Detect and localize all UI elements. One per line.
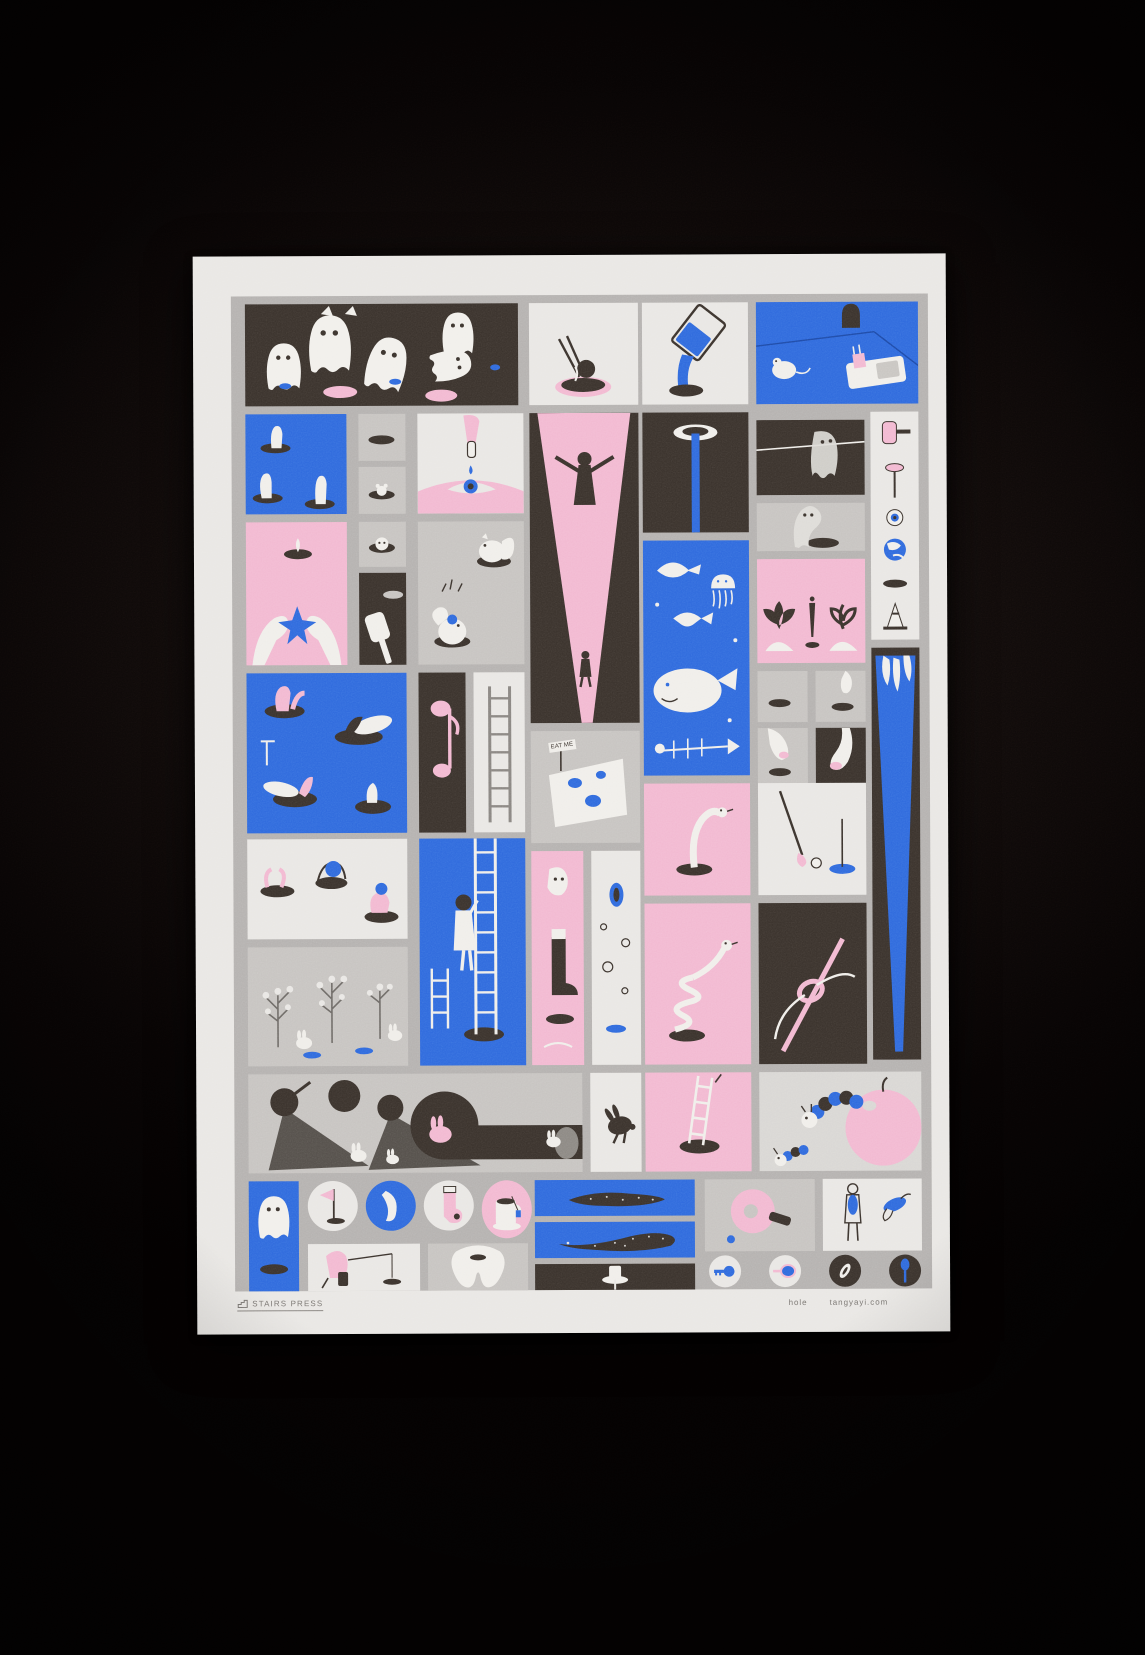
panel-finger-holes [245, 414, 346, 514]
ladder-climber-illustration [419, 838, 526, 1065]
panel-light-beam [529, 413, 639, 723]
panel-circle-blue-crescent [366, 1181, 416, 1231]
hole-hugger-illustration [823, 1178, 922, 1250]
whale [653, 668, 737, 712]
ghost-column-illustration [249, 1181, 299, 1291]
boot-step-illustration [531, 851, 584, 1065]
photo-of-poster: EAT ME [0, 0, 1145, 1655]
poster-grid: EAT ME [231, 293, 932, 1291]
panel-pouring-glass [642, 302, 748, 404]
mole-mallet-illustration [359, 573, 406, 665]
publisher-mark: STAIRS PRESS [237, 1299, 323, 1311]
needle-thread-illustration [758, 903, 867, 1064]
panel-eye-dropper [417, 413, 523, 513]
twig-garden-illustration [248, 947, 409, 1067]
panel-undersea [643, 540, 750, 775]
hole-players-illustration [247, 839, 407, 940]
star-pickup-illustration [246, 522, 348, 665]
panel-ghost-column [249, 1181, 299, 1291]
stairs-press-logo-icon [237, 1299, 248, 1308]
poster-credits: hole tangyayi.com [789, 1298, 889, 1307]
ladder-out-illustration [645, 1072, 751, 1171]
panel-tooth-cavity [428, 1243, 528, 1290]
tooth-illustration [428, 1243, 528, 1290]
panel-circle-golf-flag [308, 1181, 358, 1231]
pouring-glass-illustration [642, 302, 748, 404]
panel-star-pickup [246, 522, 348, 665]
undersea-illustration [643, 540, 750, 775]
finger-holes-illustration [245, 414, 346, 514]
spring-coil-illustration [644, 903, 751, 1064]
panel-ladder-up [473, 672, 525, 832]
ghost-slump-illustration [757, 503, 865, 551]
panel-rabbit-silhouette [590, 1073, 641, 1172]
snake-out-illustration [644, 783, 750, 895]
globe-icon [884, 539, 906, 561]
panel-small-hole [358, 414, 405, 461]
panel-ghost-clothesline [756, 420, 864, 495]
panel-paddle-hole [705, 1179, 815, 1251]
panel-bubble-holes [591, 851, 641, 1065]
panel-fisher [308, 1244, 420, 1291]
mousetrap-illustration [756, 301, 918, 404]
ladder-illustration [473, 672, 525, 832]
poster-footer: STAIRS PRESS hole tangyayi.com [197, 1296, 950, 1313]
ghost-party-illustration [245, 303, 518, 406]
panel-garden [757, 559, 865, 663]
hugging-figure [845, 1184, 861, 1241]
panel-golf-putt [758, 783, 866, 895]
shadow-rabbits-illustration [248, 1073, 582, 1173]
hand-through-hole [881, 1194, 911, 1221]
panel-circle-mug [482, 1180, 532, 1238]
panel-finger-dark [816, 728, 866, 785]
object-strip-illustration [870, 411, 919, 639]
panel-hole-players [247, 839, 407, 940]
poster-title: hole [789, 1298, 808, 1307]
noodle-hole-illustration [529, 303, 638, 405]
panel-eat-me-cheese: EAT ME [531, 731, 640, 843]
panel-noodle-hole [529, 303, 638, 405]
pink-note-illustration [418, 672, 466, 832]
panel-mole-mallet [359, 573, 406, 665]
panel-sink-drain [642, 412, 749, 532]
fish-bones [655, 738, 740, 758]
eye-dropper-illustration [417, 413, 523, 513]
sink-drain-illustration [642, 412, 749, 532]
traffic-cone-icon [883, 604, 907, 630]
panel-circle-sock [424, 1180, 474, 1230]
panel-sprinkler [535, 1263, 695, 1290]
panel-eel-swim-2 [535, 1221, 695, 1258]
panel-small-hole-mouse [359, 467, 406, 514]
panel-object-strip [870, 411, 919, 639]
panel-ghost-slump [757, 503, 865, 551]
panel-pink-note [418, 672, 466, 832]
panel-circle-pan [769, 1255, 801, 1287]
poster-paper: EAT ME [193, 253, 951, 1334]
panel-fingertip-hole [758, 728, 808, 785]
garden-illustration [757, 559, 865, 663]
panel-spring-coil [644, 903, 751, 1064]
paddle-illustration [705, 1179, 815, 1251]
fisher-illustration [308, 1244, 420, 1291]
cheese-illustration [531, 731, 640, 843]
squirrel-burrows-illustration [418, 521, 525, 664]
caterpillar-apple-illustration [759, 1071, 921, 1171]
panel-squirrel-burrows [418, 521, 525, 664]
panel-mousetrap-room [756, 301, 918, 404]
wedge-claw-illustration [871, 647, 921, 1059]
panel-ladder-climber [419, 838, 526, 1065]
eel-2-illustration [535, 1221, 695, 1258]
panel-snake-out [644, 783, 750, 895]
panel-hole-small [757, 671, 807, 722]
panel-ghost-party [245, 303, 518, 406]
artist-website: tangyayi.com [830, 1298, 889, 1307]
eyeball-icon [887, 510, 903, 526]
panel-circle-key [709, 1255, 741, 1287]
ghost-clothesline-illustration [756, 420, 864, 495]
hole-icon [883, 580, 907, 588]
publisher-name: STAIRS PRESS [252, 1299, 323, 1308]
panel-peek-face [359, 522, 406, 567]
panel-eel-swim-1 [535, 1179, 695, 1216]
panel-hole-hugger [823, 1178, 922, 1250]
rabbit-silhouette-illustration [590, 1073, 641, 1172]
panel-needle-thread [758, 903, 867, 1064]
panel-finger-over-hole [815, 671, 865, 722]
light-beam-illustration [529, 413, 639, 723]
panel-circle-coin [829, 1255, 861, 1287]
panel-twig-garden [248, 947, 409, 1067]
caterpillar-small [774, 1145, 809, 1166]
sprinkler-illustration [535, 1263, 695, 1290]
pushpin-icon [886, 464, 904, 498]
panel-manhole-divers [246, 673, 407, 834]
eel-1-illustration [535, 1179, 695, 1216]
golf-putt-illustration [758, 783, 866, 895]
panel-circle-spoon [889, 1254, 921, 1286]
bubble-holes-illustration [591, 851, 641, 1065]
panel-ladder-out [645, 1072, 751, 1171]
hammer-icon [882, 422, 910, 444]
panel-wedge-claw [871, 647, 921, 1059]
panel-boot-step [531, 851, 584, 1065]
panel-caterpillar-apple [759, 1071, 921, 1171]
manhole-divers-illustration [246, 673, 407, 834]
panel-shadow-rabbits [248, 1073, 582, 1173]
